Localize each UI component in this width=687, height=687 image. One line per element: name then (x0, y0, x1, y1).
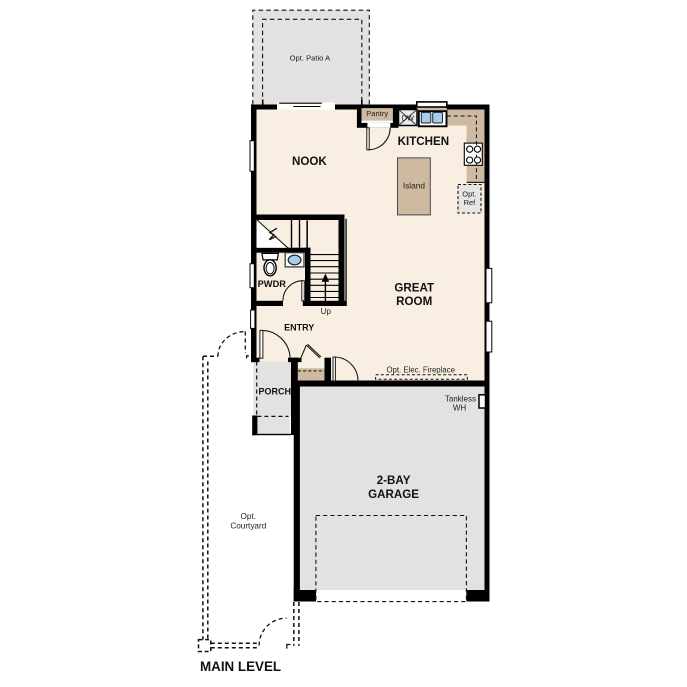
svg-text:ROOM: ROOM (396, 295, 432, 308)
svg-text:Opt. Patio A: Opt. Patio A (290, 54, 331, 63)
svg-text:NOOK: NOOK (292, 155, 327, 168)
svg-text:Island: Island (403, 181, 426, 191)
svg-text:DW: DW (402, 113, 414, 122)
svg-text:Tankless: Tankless (445, 395, 476, 404)
svg-text:Up: Up (321, 307, 332, 316)
svg-text:GREAT: GREAT (394, 281, 434, 294)
svg-text:PWDR: PWDR (258, 279, 287, 289)
svg-text:PORCH: PORCH (259, 387, 292, 397)
svg-text:Opt.: Opt. (241, 512, 256, 521)
svg-text:Opt. Elec. Fireplace: Opt. Elec. Fireplace (386, 365, 454, 374)
svg-text:ENTRY: ENTRY (284, 323, 314, 333)
svg-text:GARAGE: GARAGE (368, 488, 419, 501)
svg-text:Opt.: Opt. (462, 189, 476, 198)
svg-text:MAIN LEVEL: MAIN LEVEL (200, 659, 281, 674)
svg-text:Courtyard: Courtyard (230, 522, 266, 531)
svg-text:Pantry: Pantry (366, 109, 388, 118)
svg-text:Ref: Ref (464, 198, 477, 207)
svg-text:WH: WH (453, 404, 467, 413)
svg-text:2-BAY: 2-BAY (377, 474, 411, 487)
svg-text:KITCHEN: KITCHEN (398, 135, 450, 148)
